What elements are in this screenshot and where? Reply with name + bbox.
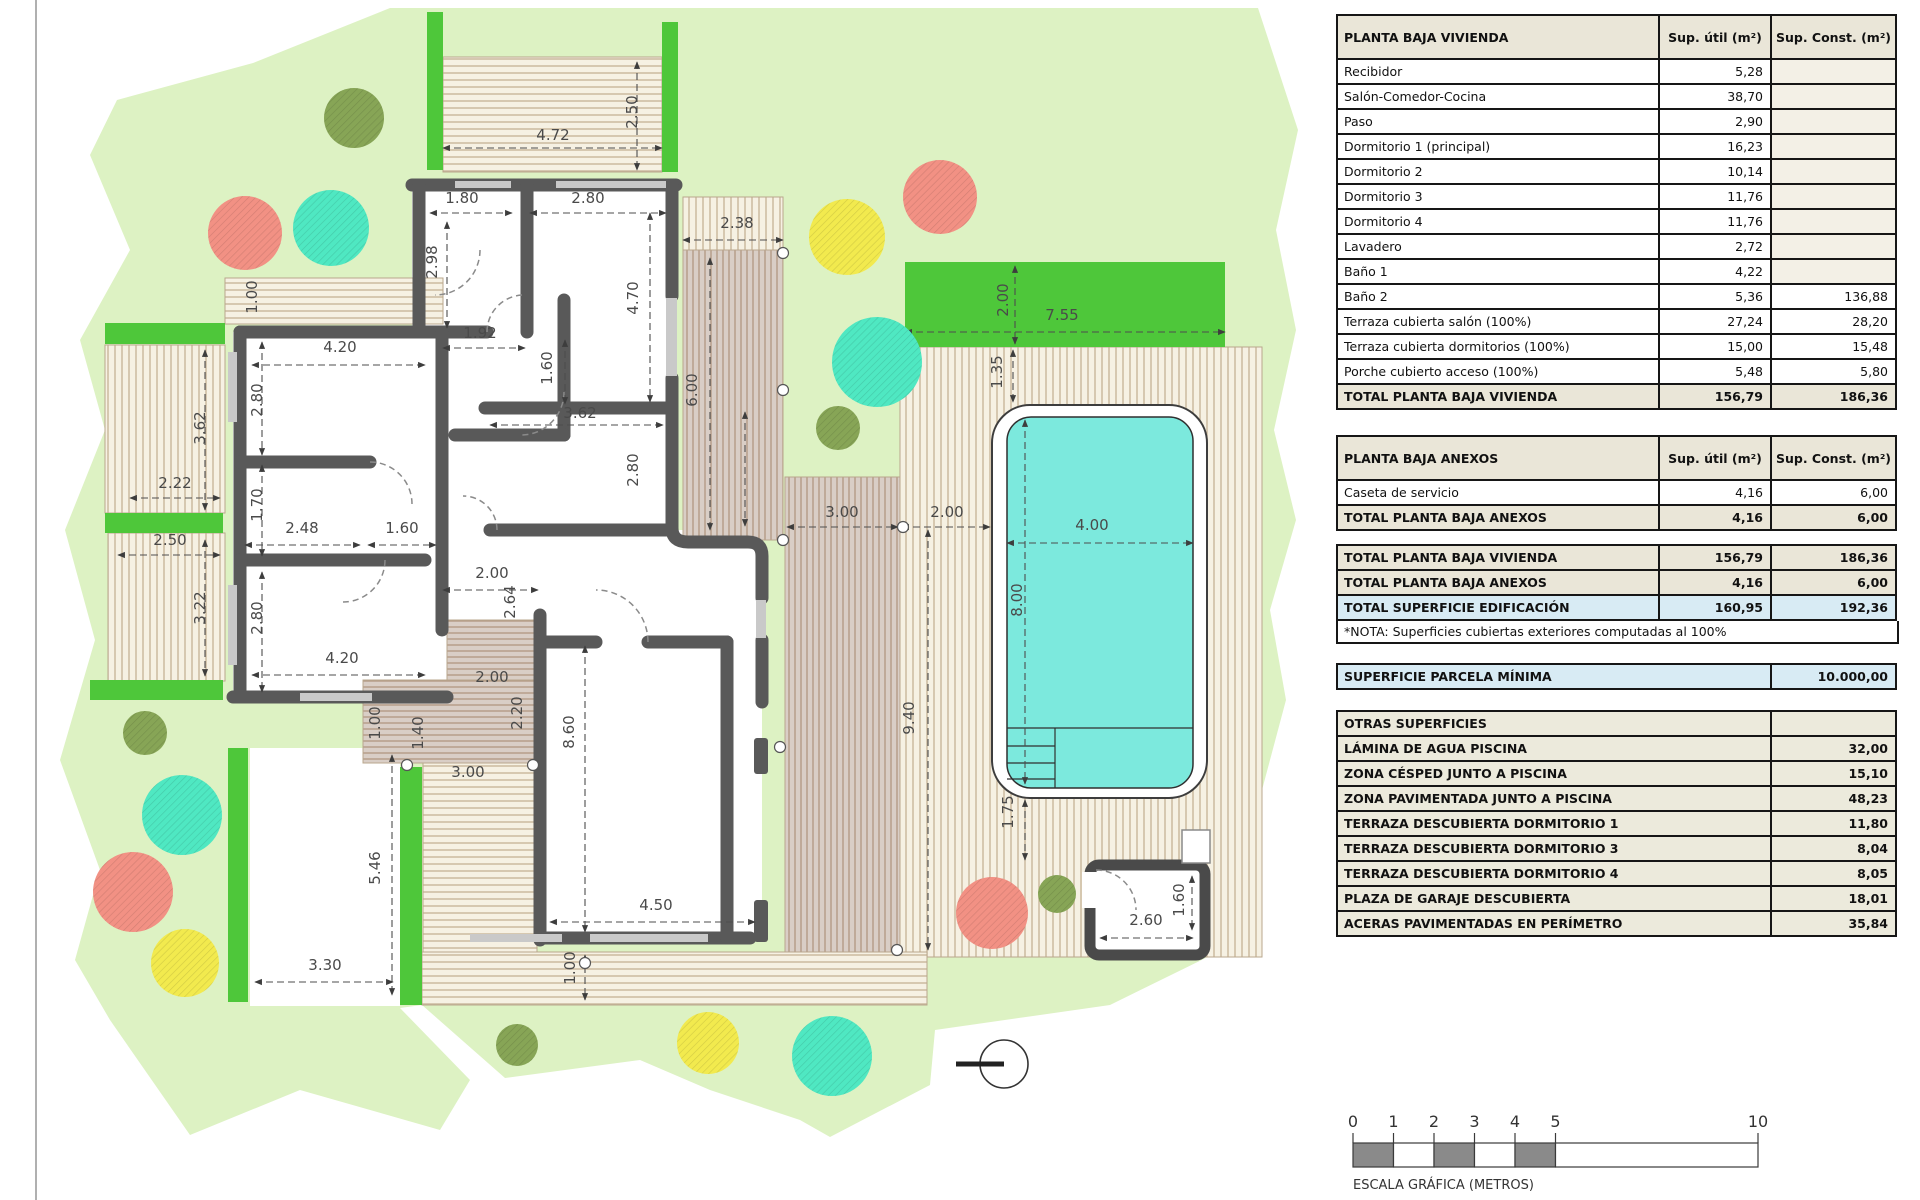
dimension-label: 2.00: [475, 564, 508, 582]
survey-point: [580, 958, 591, 969]
sup-const-value: 28,20: [1771, 309, 1896, 334]
sup-util-value: 38,70: [1659, 84, 1771, 109]
scale-segment: [1434, 1143, 1475, 1167]
tree-hatch: [142, 775, 222, 855]
table-row: TOTAL PLANTA BAJA ANEXOS4,166,00: [1337, 505, 1896, 530]
sup-const-value: [1771, 159, 1896, 184]
scale-segment: [1353, 1143, 1394, 1167]
table-row: LÁMINA DE AGUA PISCINA32,00: [1337, 736, 1896, 761]
total-label: TOTAL PLANTA BAJA ANEXOS: [1337, 505, 1659, 530]
row-value: 35,84: [1771, 911, 1896, 936]
table-title: OTRAS SUPERFICIES: [1337, 711, 1771, 736]
dimension-label: 2.80: [624, 453, 642, 486]
total-sup-util: 156,79: [1659, 545, 1771, 570]
sup-util-value: 2,72: [1659, 234, 1771, 259]
dimension-label: 4.70: [624, 281, 642, 314]
row-label: ACERAS PAVIMENTADAS EN PERÍMETRO: [1337, 911, 1771, 936]
table-row: Terraza cubierta dormitorios (100%)15,00…: [1337, 334, 1896, 359]
row-value: 15,10: [1771, 761, 1896, 786]
dimension-label: 1.40: [409, 716, 427, 749]
dimension-label: 2.98: [423, 245, 441, 278]
nota-text: *NOTA: Superficies cubiertas exteriores …: [1336, 621, 1899, 644]
row-label: Paso: [1337, 109, 1659, 134]
scale-segment: [1475, 1143, 1516, 1167]
table-row: TOTAL PLANTA BAJA VIVIENDA156,79186,36: [1337, 384, 1896, 409]
dimension-label: 9.40: [900, 701, 918, 734]
total-sup-const: 192,36: [1771, 595, 1896, 620]
dimension-label: 2.20: [508, 696, 526, 729]
row-label: ZONA CÉSPED JUNTO A PISCINA: [1337, 761, 1771, 786]
scale-segment: [1515, 1143, 1556, 1167]
sup-util-value: 27,24: [1659, 309, 1771, 334]
scale-label: 3: [1469, 1112, 1479, 1131]
dimension-label: 1.00: [243, 280, 261, 313]
dimension-label: 2.50: [153, 531, 186, 549]
table-row: Porche cubierto acceso (100%)5,485,80: [1337, 359, 1896, 384]
total-label: TOTAL SUPERFICIE EDIFICACIÓN: [1337, 595, 1659, 620]
table-otras-superficies: OTRAS SUPERFICIESLÁMINA DE AGUA PISCINA3…: [1336, 710, 1897, 937]
sup-util-value: 4,22: [1659, 259, 1771, 284]
sup-const-value: [1771, 259, 1896, 284]
sup-util-value: 5,48: [1659, 359, 1771, 384]
table-row: Dormitorio 210,14: [1337, 159, 1896, 184]
dimension-label: 3.62: [191, 411, 209, 444]
sup-util-value: 5,28: [1659, 59, 1771, 84]
sup-const-value: [1771, 134, 1896, 159]
row-label: Recibidor: [1337, 59, 1659, 84]
total-sup-util: 156,79: [1659, 384, 1771, 409]
row-value: 32,00: [1771, 736, 1896, 761]
table-row: Caseta de servicio4,166,00: [1337, 480, 1896, 505]
dimension-label: 4.50: [639, 896, 672, 914]
row-label: TERRAZA DESCUBIERTA DORMITORIO 4: [1337, 861, 1771, 886]
table-row: Lavadero2,72: [1337, 234, 1896, 259]
row-label: Salón-Comedor-Cocina: [1337, 84, 1659, 109]
table-row: Dormitorio 311,76: [1337, 184, 1896, 209]
survey-point: [402, 760, 413, 771]
dimension-label: 2.50: [623, 95, 641, 128]
sup-const-value: [1771, 59, 1896, 84]
row-value: 11,80: [1771, 811, 1896, 836]
tree-hatch: [324, 88, 384, 148]
sup-util-value: 15,00: [1659, 334, 1771, 359]
parcela-value: 10.000,00: [1771, 664, 1896, 689]
hedge-strip: [105, 513, 223, 533]
dimension-label: 3.00: [451, 763, 484, 781]
scale-label: 10: [1748, 1112, 1768, 1131]
column-header: Sup. Const. (m²): [1771, 436, 1896, 480]
sup-util-value: 11,76: [1659, 184, 1771, 209]
dimension-label: 4.20: [325, 649, 358, 667]
table-row: Paso2,90: [1337, 109, 1896, 134]
column-header: Sup. útil (m²): [1659, 15, 1771, 59]
tree-hatch: [93, 852, 173, 932]
table-row: TERRAZA DESCUBIERTA DORMITORIO 48,05: [1337, 861, 1896, 886]
tree-hatch: [816, 406, 860, 450]
column-header: Sup. Const. (m²): [1771, 15, 1896, 59]
sup-const-value: [1771, 84, 1896, 109]
hedge-strip: [662, 22, 678, 172]
dimension-label: 3.00: [825, 503, 858, 521]
row-value: 8,05: [1771, 861, 1896, 886]
tree-hatch: [792, 1016, 872, 1096]
dimension-label: 2.64: [501, 585, 519, 618]
dimension-label: 2.80: [248, 601, 266, 634]
sup-const-value: [1771, 184, 1896, 209]
total-label: TOTAL PLANTA BAJA ANEXOS: [1337, 570, 1659, 595]
table-row: Baño 25,36136,88: [1337, 284, 1896, 309]
dimension-label: 2.00: [994, 283, 1012, 316]
scale-label: 2: [1429, 1112, 1439, 1131]
tree-hatch: [208, 196, 282, 270]
total-sup-const: 186,36: [1771, 545, 1896, 570]
sup-util-value: 11,76: [1659, 209, 1771, 234]
dimension-label: 8.00: [1008, 583, 1026, 616]
row-label: Lavadero: [1337, 234, 1659, 259]
scale-label: 4: [1510, 1112, 1520, 1131]
row-value: 48,23: [1771, 786, 1896, 811]
dimension-label: 1.60: [385, 519, 418, 537]
hedge-strip: [427, 12, 443, 170]
dimension-label: 5.46: [366, 851, 384, 884]
survey-point: [778, 385, 789, 396]
survey-point: [778, 248, 789, 259]
scale-label: 0: [1348, 1112, 1358, 1131]
hedge-strip: [90, 680, 223, 700]
survey-point: [528, 760, 539, 771]
dimension-label: 1.00: [366, 706, 384, 739]
survey-point: [775, 742, 786, 753]
total-sup-const: 6,00: [1771, 570, 1896, 595]
dimension-label: 2.60: [1129, 911, 1162, 929]
tree-hatch: [903, 160, 977, 234]
hedge-strip: [228, 748, 248, 1002]
dimension-label: 2.22: [158, 474, 191, 492]
table-row: TERRAZA DESCUBIERTA DORMITORIO 111,80: [1337, 811, 1896, 836]
dimension-label: 3.62: [563, 404, 596, 422]
total-sup-util: 4,16: [1659, 505, 1771, 530]
table-title: PLANTA BAJA ANEXOS: [1337, 436, 1659, 480]
row-label: Porche cubierto acceso (100%): [1337, 359, 1659, 384]
table-row: SUPERFICIE PARCELA MÍNIMA10.000,00: [1337, 664, 1896, 689]
scale-label: 5: [1550, 1112, 1560, 1131]
area-summary-panel: PLANTA BAJA VIVIENDASup. útil (m²)Sup. C…: [1336, 14, 1896, 937]
table-row: Dormitorio 1 (principal)16,23: [1337, 134, 1896, 159]
row-label: TERRAZA DESCUBIERTA DORMITORIO 3: [1337, 836, 1771, 861]
table-title: PLANTA BAJA VIVIENDA: [1337, 15, 1659, 59]
table-planta-baja-vivienda: PLANTA BAJA VIVIENDASup. útil (m²)Sup. C…: [1336, 14, 1897, 410]
table-row: ACERAS PAVIMENTADAS EN PERÍMETRO35,84: [1337, 911, 1896, 936]
survey-point: [778, 535, 789, 546]
sup-const-value: 136,88: [1771, 284, 1896, 309]
scale-caption: ESCALA GRÁFICA (METROS): [1353, 1177, 1534, 1193]
sup-util-value: 2,90: [1659, 109, 1771, 134]
sup-const-value: [1771, 234, 1896, 259]
row-label: ZONA PAVIMENTADA JUNTO A PISCINA: [1337, 786, 1771, 811]
total-sup-const: 186,36: [1771, 384, 1896, 409]
tree-hatch: [151, 929, 219, 997]
row-label: Dormitorio 4: [1337, 209, 1659, 234]
scale-segment: [1394, 1143, 1435, 1167]
tree-hatch: [496, 1024, 538, 1066]
survey-point: [898, 522, 909, 533]
table-row: ZONA PAVIMENTADA JUNTO A PISCINA48,23: [1337, 786, 1896, 811]
tree-hatch: [956, 877, 1028, 949]
row-label: Caseta de servicio: [1337, 480, 1659, 505]
sup-util-value: 10,14: [1659, 159, 1771, 184]
table-superficie-parcela: SUPERFICIE PARCELA MÍNIMA10.000,00: [1336, 663, 1897, 690]
floor-plan-sheet: 2.504.721.802.802.382.984.701.001.924.20…: [0, 0, 1920, 1200]
total-sup-util: 4,16: [1659, 570, 1771, 595]
column-header: Sup. útil (m²): [1659, 436, 1771, 480]
table-row: PLANTA BAJA VIVIENDASup. útil (m²)Sup. C…: [1337, 15, 1896, 59]
north-compass: [956, 1040, 1028, 1088]
table-row: TOTAL PLANTA BAJA VIVIENDA156,79186,36: [1337, 545, 1896, 570]
row-label: LÁMINA DE AGUA PISCINA: [1337, 736, 1771, 761]
dimension-label: 6.00: [683, 373, 701, 406]
row-label: PLAZA DE GARAJE DESCUBIERTA: [1337, 886, 1771, 911]
table-row: TOTAL SUPERFICIE EDIFICACIÓN160,95192,36: [1337, 595, 1896, 620]
table-totales: TOTAL PLANTA BAJA VIVIENDA156,79186,36TO…: [1336, 544, 1897, 621]
sup-const-value: 15,48: [1771, 334, 1896, 359]
dimension-label: 1.70: [248, 488, 266, 521]
sup-const-value: 6,00: [1771, 480, 1896, 505]
dimension-label: 1.00: [561, 951, 579, 984]
dimension-label: 2.38: [720, 214, 753, 232]
row-label: Dormitorio 3: [1337, 184, 1659, 209]
table-planta-baja-anexos: PLANTA BAJA ANEXOSSup. útil (m²)Sup. Con…: [1336, 435, 1897, 531]
dimension-label: 7.55: [1045, 306, 1078, 324]
sup-util-value: 16,23: [1659, 134, 1771, 159]
row-label: TERRAZA DESCUBIERTA DORMITORIO 1: [1337, 811, 1771, 836]
survey-point: [892, 945, 903, 956]
hedge-strip: [105, 323, 225, 344]
parcela-label: SUPERFICIE PARCELA MÍNIMA: [1337, 664, 1771, 689]
hedge-strip: [400, 767, 422, 1005]
table-row: Baño 14,22: [1337, 259, 1896, 284]
row-value: 18,01: [1771, 886, 1896, 911]
table-row: OTRAS SUPERFICIES: [1337, 711, 1896, 736]
sup-const-value: [1771, 209, 1896, 234]
sup-util-value: 5,36: [1659, 284, 1771, 309]
hedge-strip: [905, 262, 1225, 347]
dimension-label: 4.00: [1075, 516, 1108, 534]
dimension-label: 2.48: [285, 519, 318, 537]
row-label: Baño 1: [1337, 259, 1659, 284]
tree-hatch: [809, 199, 885, 275]
dimension-label: 4.72: [536, 126, 569, 144]
dimension-label: 1.35: [988, 355, 1006, 388]
row-label: Baño 2: [1337, 284, 1659, 309]
table-row: Recibidor5,28: [1337, 59, 1896, 84]
table-row: PLANTA BAJA ANEXOSSup. útil (m²)Sup. Con…: [1337, 436, 1896, 480]
dimension-label: 3.30: [308, 956, 341, 974]
tree-hatch: [123, 711, 167, 755]
scale-label: 1: [1388, 1112, 1398, 1131]
dimension-label: 3.22: [191, 591, 209, 624]
sup-util-value: 4,16: [1659, 480, 1771, 505]
row-label: Dormitorio 2: [1337, 159, 1659, 184]
dimension-label: 2.00: [930, 503, 963, 521]
dimension-label: 1.92: [463, 324, 496, 342]
dimension-label: 1.60: [1170, 883, 1188, 916]
scale-segment: [1556, 1143, 1759, 1167]
total-sup-const: 6,00: [1771, 505, 1896, 530]
total-label: TOTAL PLANTA BAJA VIVIENDA: [1337, 545, 1659, 570]
dimension-label: 8.60: [560, 715, 578, 748]
row-label: Terraza cubierta dormitorios (100%): [1337, 334, 1659, 359]
dimension-label: 2.80: [248, 383, 266, 416]
table-row: ZONA CÉSPED JUNTO A PISCINA15,10: [1337, 761, 1896, 786]
tree-hatch: [293, 190, 369, 266]
total-label: TOTAL PLANTA BAJA VIVIENDA: [1337, 384, 1659, 409]
tree-hatch: [677, 1012, 739, 1074]
table-row: PLAZA DE GARAJE DESCUBIERTA18,01: [1337, 886, 1896, 911]
sup-const-value: [1771, 109, 1896, 134]
table-row: TERRAZA DESCUBIERTA DORMITORIO 38,04: [1337, 836, 1896, 861]
total-sup-util: 160,95: [1659, 595, 1771, 620]
dimension-label: 4.20: [323, 338, 356, 356]
table-row: Dormitorio 411,76: [1337, 209, 1896, 234]
dimension-label: 2.80: [571, 189, 604, 207]
dimension-label: 1.75: [999, 795, 1017, 828]
graphic-scale: 01234510ESCALA GRÁFICA (METROS): [1348, 1112, 1768, 1193]
row-value: 8,04: [1771, 836, 1896, 861]
column-header: [1771, 711, 1896, 736]
sup-const-value: 5,80: [1771, 359, 1896, 384]
table-row: TOTAL PLANTA BAJA ANEXOS4,166,00: [1337, 570, 1896, 595]
table-row: Terraza cubierta salón (100%)27,2428,20: [1337, 309, 1896, 334]
tree-hatch: [1038, 875, 1076, 913]
tree-hatch: [832, 317, 922, 407]
dimension-label: 1.60: [538, 351, 556, 384]
row-label: Terraza cubierta salón (100%): [1337, 309, 1659, 334]
row-label: Dormitorio 1 (principal): [1337, 134, 1659, 159]
dimension-label: 1.80: [445, 189, 478, 207]
dimension-label: 2.00: [475, 668, 508, 686]
table-row: Salón-Comedor-Cocina38,70: [1337, 84, 1896, 109]
